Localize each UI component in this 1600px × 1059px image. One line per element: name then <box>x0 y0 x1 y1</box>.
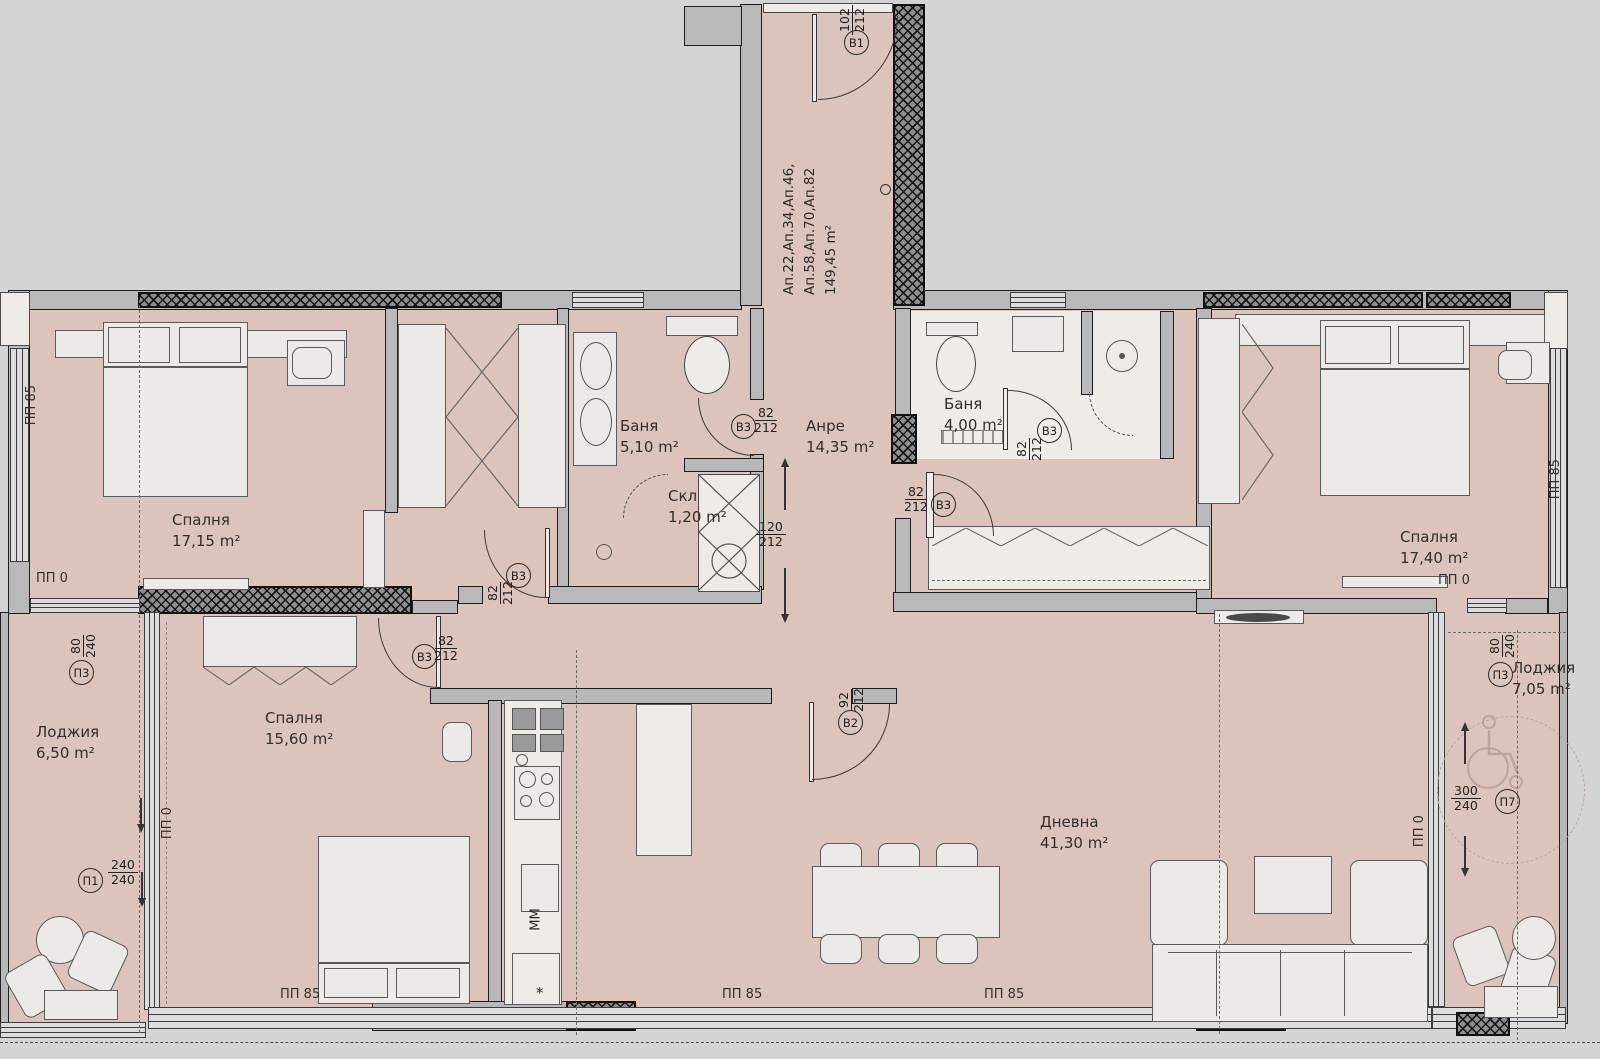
kitchen-cabinet <box>540 708 564 730</box>
dim-bedroom-mid: 82 212 <box>434 634 458 664</box>
dim-width: 80 <box>1488 635 1503 657</box>
wall-corridor-left <box>740 4 762 306</box>
kitchen-star: * <box>536 984 544 1002</box>
bench-bedroom-left <box>143 578 249 590</box>
room-name: Дневна <box>1040 812 1108 833</box>
room-area: 4,00 m² <box>944 415 1003 436</box>
loggia-table-round <box>1512 916 1556 960</box>
bed-fold-line <box>1321 368 1469 370</box>
apartment-line1: Ап.22,Ап.34,Ап.46, <box>779 125 800 295</box>
wall-hall-right-a <box>895 308 911 418</box>
mark-pp0-bedroom-right: ПП 0 <box>1438 572 1470 590</box>
door-tag-hall-right: B3 <box>931 492 956 517</box>
pillow <box>396 968 460 998</box>
kitchen-sink-icon <box>516 754 528 766</box>
wall-lobby-a <box>412 600 458 614</box>
tv-icon <box>1226 613 1290 622</box>
mark-pp85-bottom-3: ПП 85 <box>984 986 1024 1004</box>
sink-icon <box>580 342 612 390</box>
pillow <box>1398 326 1464 364</box>
wall-bedroom-wardrobe <box>385 308 398 513</box>
coffee-table <box>1254 856 1332 914</box>
wall-top-hatch-right-b <box>1426 292 1511 308</box>
wall-loggia-right-top <box>1505 598 1548 614</box>
kitchen-mm-label: ММ <box>516 912 556 927</box>
wardrobe-right-zigzag-icon <box>1242 324 1304 500</box>
door-tag-entrance: B1 <box>844 30 869 55</box>
dim-shaft: 120 212 <box>756 520 786 550</box>
wardrobe-left-a <box>398 324 446 508</box>
burner-icon <box>519 771 536 788</box>
arrow-stem <box>1464 836 1466 870</box>
kitchen-cabinet <box>540 734 564 752</box>
sofa-divider <box>1216 950 1217 1016</box>
room-area: 6,50 m² <box>36 743 99 764</box>
sink-icon <box>580 398 612 446</box>
sofa-divider <box>1344 950 1345 1016</box>
arrow-stem <box>784 466 786 510</box>
dim-width: 120 <box>756 520 786 535</box>
mark-pp85-bottom-2: ПП 85 <box>722 986 762 1004</box>
room-label-bedroom-mid: Спалня 15,60 m² <box>265 708 333 750</box>
kitchen-cabinet <box>512 734 536 752</box>
door-tag-lobby: B3 <box>506 563 531 588</box>
room-area: 1,20 m² <box>668 507 727 528</box>
wall-corridor-stub <box>684 6 742 46</box>
dim-width: 82 <box>1015 438 1030 460</box>
closet-bedroom-mid <box>203 616 357 667</box>
dim-width: 80 <box>69 635 84 657</box>
wall-shaft-top <box>684 458 764 472</box>
dim-width: 240 <box>108 858 138 873</box>
armchair <box>1350 860 1428 946</box>
dim-height: 240 <box>111 873 135 887</box>
toilet-tank-bath-main <box>666 316 738 336</box>
dining-chair <box>936 934 978 964</box>
door-tag-bath-small: B3 <box>1037 418 1062 443</box>
dining-table <box>812 866 1000 938</box>
wardrobe-bedroom-right <box>1198 318 1240 504</box>
window-tag-loggia-right-win: П7 <box>1495 789 1520 814</box>
mark-pp0-loggia-left: ПП 0 <box>159 801 177 845</box>
room-label-loggia-right: Лоджия 7,05 m² <box>1512 658 1575 700</box>
room-area: 14,35 m² <box>806 437 874 458</box>
dim-height: 212 <box>759 535 783 549</box>
bench-bedroom-right <box>1342 576 1448 588</box>
room-area: 41,30 m² <box>1040 833 1108 854</box>
room-name: Скл <box>668 486 727 507</box>
window-loggia-right-door <box>1467 598 1507 613</box>
wall-hall-right-b <box>895 518 911 594</box>
window-loggia-left-door <box>30 598 140 613</box>
room-name: Баня <box>620 416 679 437</box>
dim-width: 92 <box>837 689 852 711</box>
dim-width: 82 <box>905 485 927 500</box>
room-name: Баня <box>944 394 1003 415</box>
dim-height: 212 <box>904 500 928 514</box>
room-name: Спалня <box>1400 527 1468 548</box>
wardrobe-left-b <box>518 324 566 508</box>
dim-width: 300 <box>1451 784 1481 799</box>
arrow-down-icon <box>781 614 789 623</box>
mark-pp0-bedroom-left: ПП 0 <box>36 570 68 588</box>
sofa-divider <box>1280 950 1281 1016</box>
toilet-icon <box>684 336 730 394</box>
room-label-storage: Скл 1,20 m² <box>668 486 727 528</box>
mark-pp85-right-wall: ПП 85 <box>1547 453 1565 505</box>
floor-plan: ММ * <box>0 0 1600 1059</box>
window-tag-loggia-right-door: П3 <box>1488 662 1513 687</box>
arrow-down-icon <box>1461 868 1469 877</box>
chair-bedroom-mid <box>442 722 472 762</box>
dim-height: 240 <box>1503 634 1517 658</box>
dim-width: 82 <box>755 406 777 421</box>
room-label-living: Дневна 41,30 m² <box>1040 812 1108 854</box>
oven <box>521 864 559 912</box>
window-tag-loggia-left-win: П1 <box>78 868 103 893</box>
dim-loggia-right-win: 300 240 <box>1451 784 1481 814</box>
bed-fold-line <box>319 962 469 964</box>
door-tag-living: B2 <box>838 710 863 735</box>
burner-icon <box>539 792 554 807</box>
window-bath-main <box>572 292 644 308</box>
dim-width: 82 <box>486 582 501 604</box>
dim-hall-right: 82 212 <box>904 485 928 515</box>
burner-icon <box>541 773 553 785</box>
entrance-threshold <box>763 3 893 13</box>
window-loggia-left-divider <box>144 612 160 1010</box>
window-tag-loggia-left-door: П3 <box>69 660 94 685</box>
drain-icon <box>596 544 612 560</box>
wardrobe-zigzag-icon <box>446 328 518 506</box>
shower-dot-icon <box>1119 353 1125 359</box>
wall-corner-left-white <box>0 292 30 346</box>
dim-height: 240 <box>1454 799 1478 813</box>
room-name: Спалня <box>265 708 333 729</box>
room-area: 17,15 m² <box>172 531 240 552</box>
dim-loggia-left-win: 240 240 <box>108 858 138 888</box>
wall-closet-bottom <box>893 592 1212 612</box>
wall-top-hatch-right-a <box>1203 292 1423 308</box>
wall-hatch-bedrooms <box>138 586 412 614</box>
room-label-bedroom-left: Спалня 17,15 m² <box>172 510 240 552</box>
window-loggia-left-bottom <box>0 1022 146 1038</box>
loggia-planter <box>1484 986 1558 1018</box>
room-name: Спалня <box>172 510 240 531</box>
arrow-stem <box>1464 730 1466 764</box>
section-line <box>576 650 577 1035</box>
pillow <box>324 968 388 998</box>
window-bath-small <box>1010 292 1066 308</box>
sofa-seat-line <box>1168 952 1412 953</box>
door-leaf-entrance <box>812 14 817 102</box>
dim-bath-main: 82 212 <box>754 406 778 436</box>
bed-fold-line <box>104 366 247 368</box>
wall-corridor-right-hatch <box>893 4 925 306</box>
chair-bedroom-left <box>292 347 332 379</box>
dim-height: 212 <box>852 688 866 712</box>
arrow-down-icon <box>137 824 145 833</box>
apartment-area: 149,45 m² <box>821 125 842 295</box>
doorbell-icon <box>880 184 891 195</box>
mark-pp85-left-wall: ПП 85 <box>23 379 41 431</box>
room-name: Анре <box>806 416 874 437</box>
boundary-dash-line <box>0 1042 1600 1043</box>
chair-bedroom-right <box>1498 350 1532 380</box>
kitchen-column <box>636 704 692 856</box>
room-area: 15,60 m² <box>265 729 333 750</box>
wall-lobby-b <box>458 586 483 604</box>
arrow-stem <box>141 872 143 898</box>
dining-chair <box>878 934 920 964</box>
toilet-tank-bath-small <box>926 322 978 336</box>
wall-bath-small-right <box>1160 311 1174 459</box>
arrow-stem <box>784 568 786 616</box>
mark-pp0-loggia-right: ПП 0 <box>1411 809 1429 853</box>
dim-height: 212 <box>754 421 778 435</box>
room-label-hall: Анре 14,35 m² <box>806 416 874 458</box>
sofa <box>1152 944 1428 1022</box>
mm-text: ММ <box>529 908 544 930</box>
dining-chair <box>820 934 862 964</box>
mark-pp85-bottom-1: ПП 85 <box>280 986 320 1004</box>
section-line <box>1219 614 1220 1034</box>
wall-top-hatch-left <box>138 292 502 308</box>
room-label-bath-main: Баня 5,10 m² <box>620 416 679 458</box>
arrow-stem <box>140 798 142 824</box>
side-shelf-bedroom-left <box>363 510 385 588</box>
room-name: Лоджия <box>36 722 99 743</box>
kitchen-cabinet <box>512 708 536 730</box>
wall-bath-main-right-a <box>750 308 764 400</box>
room-label-loggia-left: Лоджия 6,50 m² <box>36 722 99 764</box>
section-line <box>139 300 140 1033</box>
pillow <box>179 327 241 363</box>
room-area: 7,05 m² <box>1512 679 1575 700</box>
apartment-line2: Ап.58,Ап.70,Ап.82 <box>800 125 821 295</box>
pillow <box>1325 326 1391 364</box>
wall-kitchen-left <box>488 700 502 1007</box>
apartment-id-label: Ап.22,Ап.34,Ап.46, Ап.58,Ап.70,Ап.82 149… <box>779 125 845 295</box>
wall-hall-pier <box>891 414 917 464</box>
wall-kitchen-top <box>430 688 772 704</box>
closet-dash-line <box>932 580 1206 581</box>
dim-width: 82 <box>435 634 457 649</box>
dim-height: 212 <box>853 8 867 32</box>
wall-bath-small-partition <box>1081 311 1093 395</box>
armchair <box>1150 860 1228 946</box>
room-area: 5,10 m² <box>620 437 679 458</box>
closet-mid-zigzag-icon <box>203 667 357 685</box>
toilet-icon <box>936 336 976 392</box>
wall-loggia-left-outer <box>0 612 9 1024</box>
room-label-bath-small: Баня 4,00 m² <box>944 394 1003 436</box>
room-area: 17,40 m² <box>1400 548 1468 569</box>
sink-bath-small <box>1012 316 1064 352</box>
arrow-down-icon <box>138 898 146 907</box>
dim-height: 240 <box>84 634 98 658</box>
door-tag-bath-main: B3 <box>731 414 756 439</box>
loggia-planter <box>44 990 118 1020</box>
room-label-bedroom-right: Спалня 17,40 m² <box>1400 527 1468 569</box>
burner-icon <box>520 795 532 807</box>
dim-height: 212 <box>434 649 458 663</box>
room-name: Лоджия <box>1512 658 1575 679</box>
